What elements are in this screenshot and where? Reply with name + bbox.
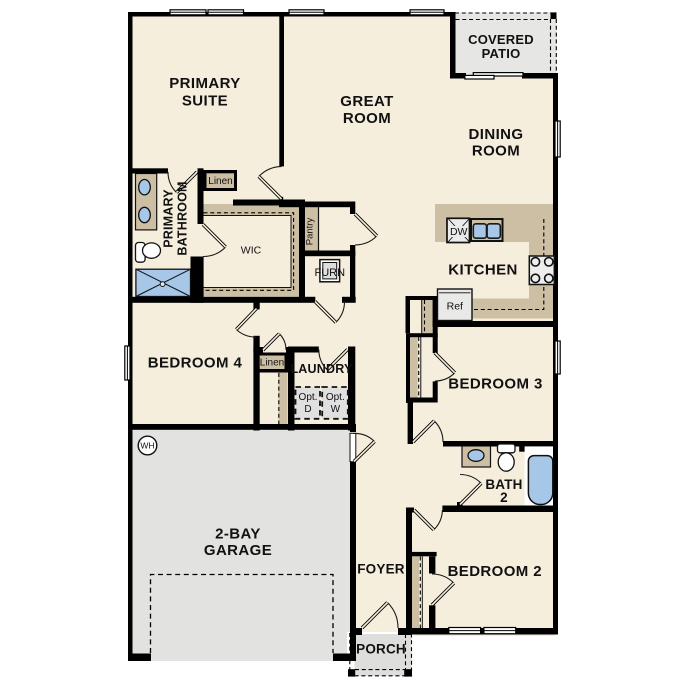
svg-text:D: D xyxy=(304,404,311,415)
svg-text:BATHROOM: BATHROOM xyxy=(176,181,190,255)
svg-text:FOYER: FOYER xyxy=(357,562,405,577)
svg-text:GARAGE: GARAGE xyxy=(204,542,272,559)
svg-text:WH: WH xyxy=(140,441,154,451)
svg-text:BEDROOM 3: BEDROOM 3 xyxy=(448,376,542,393)
svg-text:BEDROOM 4: BEDROOM 4 xyxy=(148,355,243,372)
svg-text:SUITE: SUITE xyxy=(182,93,228,110)
svg-text:W: W xyxy=(331,404,341,415)
svg-text:ROOM: ROOM xyxy=(343,110,391,127)
svg-text:2: 2 xyxy=(500,490,508,505)
svg-text:DW: DW xyxy=(450,226,468,238)
svg-text:PATIO: PATIO xyxy=(482,46,521,61)
svg-text:2-BAY: 2-BAY xyxy=(215,526,261,543)
svg-text:GREAT: GREAT xyxy=(340,93,393,110)
svg-text:Linen: Linen xyxy=(260,358,284,369)
svg-text:PRIMARY: PRIMARY xyxy=(162,189,176,248)
svg-text:Opt.: Opt. xyxy=(326,392,345,403)
svg-text:BEDROOM 2: BEDROOM 2 xyxy=(448,563,542,580)
svg-text:Linen: Linen xyxy=(208,176,232,187)
svg-text:WIC: WIC xyxy=(241,245,262,257)
svg-text:PORCH: PORCH xyxy=(356,642,406,657)
svg-text:PRIMARY: PRIMARY xyxy=(169,75,240,92)
svg-text:COVERED: COVERED xyxy=(468,32,534,47)
svg-text:KITCHEN: KITCHEN xyxy=(448,262,517,279)
svg-text:Pantry: Pantry xyxy=(304,218,315,246)
svg-text:FURN: FURN xyxy=(315,267,346,279)
svg-text:DINING: DINING xyxy=(469,126,524,143)
svg-text:Ref: Ref xyxy=(447,301,463,313)
svg-text:LAUNDRY: LAUNDRY xyxy=(290,362,353,376)
svg-text:Opt.: Opt. xyxy=(299,392,318,403)
svg-text:ROOM: ROOM xyxy=(472,143,520,160)
